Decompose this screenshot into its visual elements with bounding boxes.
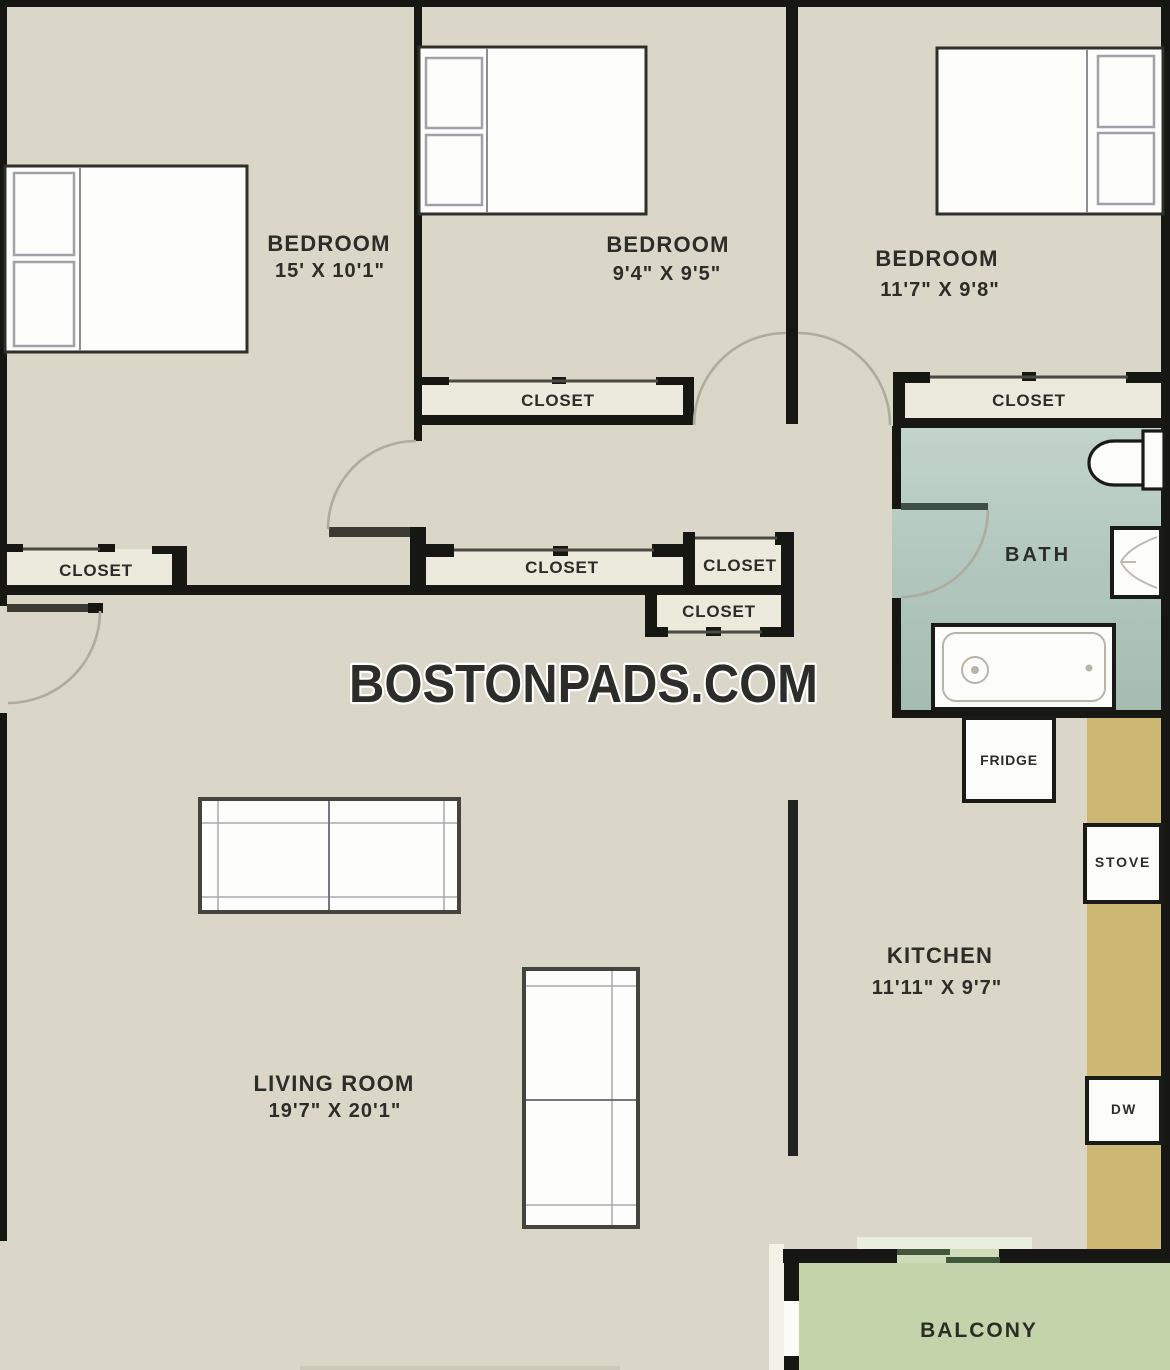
svg-text:BATH: BATH	[1005, 544, 1071, 566]
svg-text:11'7" X 9'8": 11'7" X 9'8"	[880, 279, 999, 301]
svg-text:CLOSET: CLOSET	[682, 602, 756, 621]
svg-text:BEDROOM: BEDROOM	[875, 246, 998, 271]
svg-text:9'4" X 9'5": 9'4" X 9'5"	[613, 263, 721, 285]
svg-text:CLOSET: CLOSET	[59, 561, 133, 580]
svg-text:CLOSET: CLOSET	[703, 556, 777, 575]
svg-text:LIVING ROOM: LIVING ROOM	[253, 1071, 414, 1096]
svg-text:DW: DW	[1111, 1102, 1137, 1117]
svg-text:BEDROOM: BEDROOM	[267, 231, 390, 256]
svg-text:KITCHEN: KITCHEN	[887, 943, 993, 968]
svg-text:STOVE: STOVE	[1095, 854, 1151, 870]
svg-text:BEDROOM: BEDROOM	[606, 232, 729, 257]
svg-text:CLOSET: CLOSET	[525, 558, 599, 577]
svg-text:CLOSET: CLOSET	[992, 391, 1066, 410]
svg-text:BOSTONPADS.COM: BOSTONPADS.COM	[349, 654, 818, 714]
svg-text:15' X 10'1": 15' X 10'1"	[275, 260, 385, 282]
svg-text:FRIDGE: FRIDGE	[980, 752, 1038, 768]
svg-text:11'11" X 9'7": 11'11" X 9'7"	[872, 977, 1002, 999]
svg-text:CLOSET: CLOSET	[521, 391, 595, 410]
svg-text:19'7" X 20'1": 19'7" X 20'1"	[269, 1100, 402, 1122]
svg-text:BALCONY: BALCONY	[920, 1319, 1038, 1342]
